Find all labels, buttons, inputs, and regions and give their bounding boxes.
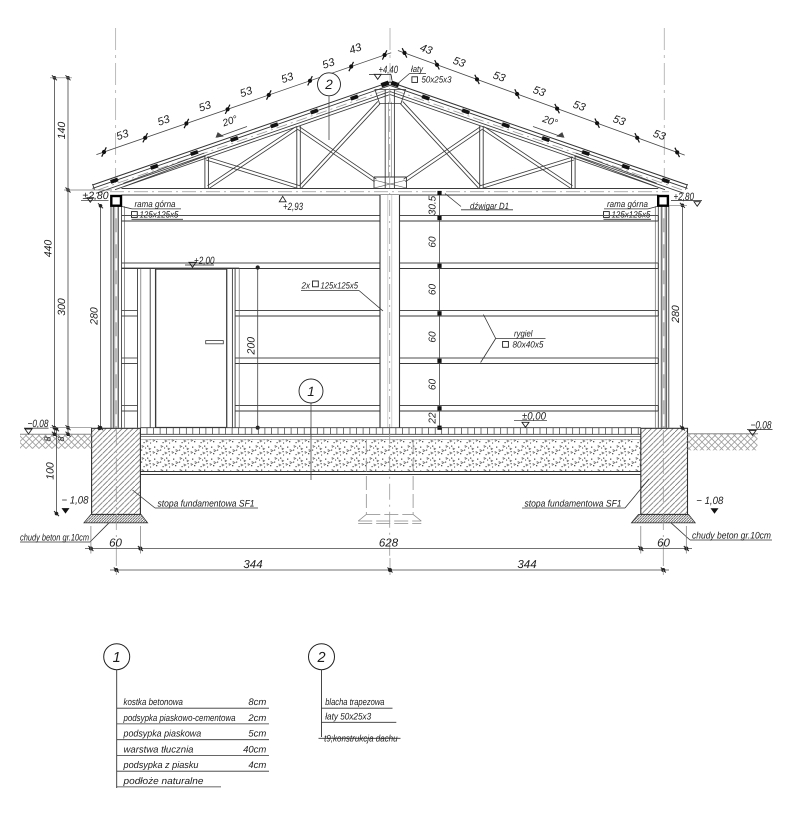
svg-text:4cm: 4cm xyxy=(248,760,266,771)
svg-text:+2,80: +2,80 xyxy=(674,191,695,203)
svg-text:stopa fundamentowa SF1: stopa fundamentowa SF1 xyxy=(158,498,255,509)
svg-text:chudy beton gr.10cm: chudy beton gr.10cm xyxy=(692,531,771,542)
svg-text:podsypka piaskowa: podsypka piaskowa xyxy=(123,729,202,740)
svg-text:2: 2 xyxy=(324,77,333,92)
svg-text:dźwigar D1: dźwigar D1 xyxy=(470,201,509,211)
svg-text:440: 440 xyxy=(43,240,55,258)
svg-text:t9;konstrukcja dachu: t9;konstrukcja dachu xyxy=(324,734,398,745)
svg-text:22: 22 xyxy=(428,412,439,425)
svg-text:8: 8 xyxy=(43,436,53,441)
svg-text:1: 1 xyxy=(307,384,315,399)
svg-text:60: 60 xyxy=(657,538,670,550)
svg-text:125x125x5: 125x125x5 xyxy=(612,209,652,219)
svg-text:warstwa tłucznia: warstwa tłucznia xyxy=(124,744,194,755)
svg-text:60: 60 xyxy=(428,331,439,343)
svg-text:2x: 2x xyxy=(301,280,311,290)
svg-text:podłoże naturalne: podłoże naturalne xyxy=(122,776,203,787)
svg-text:stopa fundamentowa SF1: stopa fundamentowa SF1 xyxy=(525,498,622,509)
svg-text:8: 8 xyxy=(56,436,66,441)
svg-text:280: 280 xyxy=(670,305,682,324)
svg-text:− 1,08: − 1,08 xyxy=(62,495,89,507)
svg-text:− 1,08: − 1,08 xyxy=(696,495,723,507)
svg-text:blacha trapezowa: blacha trapezowa xyxy=(325,697,384,708)
svg-text:rygiel: rygiel xyxy=(514,329,533,339)
svg-text:125x125x5: 125x125x5 xyxy=(321,280,359,290)
svg-text:+2,93: +2,93 xyxy=(283,201,303,213)
svg-text:60: 60 xyxy=(428,236,439,248)
svg-text:1: 1 xyxy=(113,650,121,666)
svg-text:50x25x3: 50x25x3 xyxy=(422,74,452,84)
svg-text:podsypka piaskowo-cementowa: podsypka piaskowo-cementowa xyxy=(123,713,236,724)
svg-text:40cm: 40cm xyxy=(243,744,266,755)
svg-text:60: 60 xyxy=(428,284,439,296)
svg-text:100: 100 xyxy=(45,462,57,480)
svg-text:125x125x5: 125x125x5 xyxy=(140,209,180,219)
svg-text:łaty: łaty xyxy=(411,64,423,74)
svg-text:rama górna: rama górna xyxy=(607,199,648,209)
svg-text:+4,40: +4,40 xyxy=(379,64,399,76)
svg-text:628: 628 xyxy=(379,538,399,550)
svg-text:8cm: 8cm xyxy=(248,697,266,708)
svg-text:280: 280 xyxy=(89,307,101,326)
svg-text:5cm: 5cm xyxy=(248,729,266,740)
svg-text:60: 60 xyxy=(109,538,122,550)
svg-text:podsypka z piasku: podsypka z piasku xyxy=(123,760,200,771)
svg-text:60: 60 xyxy=(428,379,439,391)
svg-text:200: 200 xyxy=(246,337,258,356)
svg-text:chudy beton gr.10cm: chudy beton gr.10cm xyxy=(20,532,89,543)
svg-text:344: 344 xyxy=(243,559,262,571)
svg-text:140: 140 xyxy=(56,122,68,140)
svg-text:2cm: 2cm xyxy=(247,713,266,724)
svg-text:łaty 50x25x3: łaty 50x25x3 xyxy=(325,712,372,723)
svg-text:344: 344 xyxy=(517,559,536,571)
svg-text:80x40x5: 80x40x5 xyxy=(513,339,545,349)
svg-text:30.5: 30.5 xyxy=(428,195,439,215)
svg-text:2: 2 xyxy=(316,650,325,666)
svg-text:300: 300 xyxy=(56,298,68,316)
svg-text:rama górna: rama górna xyxy=(135,199,176,209)
svg-text:kostka betonowa: kostka betonowa xyxy=(124,697,183,708)
